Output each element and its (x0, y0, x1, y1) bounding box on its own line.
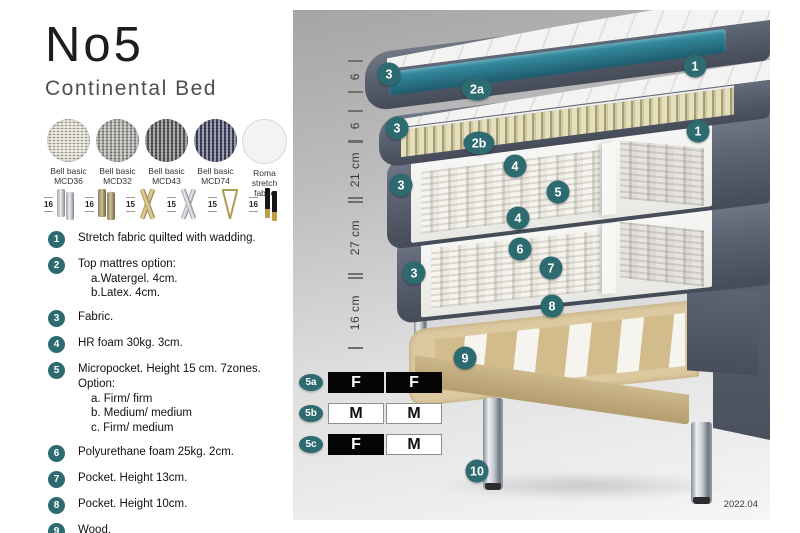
callout-1: 1 (687, 120, 710, 143)
dimension-16cm: 16 cm (342, 277, 368, 349)
callout-1: 1 (684, 55, 707, 78)
firmness-cell: F (386, 372, 442, 393)
row-label-badge: 5b (299, 405, 323, 422)
firmness-row-5a: 5a F F (299, 372, 442, 393)
product-sheet: No5 Continental Bed Bell basicMCD36 Bell… (0, 0, 800, 533)
callout-7: 7 (540, 257, 563, 280)
firmness-cell: M (386, 434, 442, 455)
fabric-swatch-icon (47, 119, 90, 162)
hairpin-leg-icon (219, 186, 241, 222)
version-stamp: 2022.04 (724, 499, 758, 510)
black-gold-leg-icon (260, 186, 282, 222)
leg-options: 16 16 15 15 15 16 (44, 186, 287, 222)
callout-6: 6 (509, 238, 532, 261)
legend-item-5: 5 Micropocket. Height 15 cm. 7zones. Opt… (48, 362, 300, 436)
pocket-springs-wall (620, 222, 704, 287)
firmness-cell: F (328, 434, 384, 455)
legend-item-7: 7 Pocket. Height 13cm. (48, 471, 300, 488)
legend-item-2: 2 Top mattres option:a.Watergel. 4cm.b.L… (48, 257, 300, 301)
legend-number-badge: 5 (48, 362, 65, 379)
legend-number-badge: 7 (48, 471, 65, 488)
callout-2b: 2b (464, 132, 495, 155)
leg-option-cross-silver: 15 (167, 186, 205, 222)
callout-3: 3 (378, 63, 401, 86)
dimension-6-second: 6 (342, 110, 368, 142)
legend-item-4: 4 HR foam 30kg. 3cm. (48, 336, 300, 353)
callout-8: 8 (541, 295, 564, 318)
fabric-swatch-icon (96, 119, 139, 162)
swatch-label: Bell basicMCD74 (197, 166, 233, 186)
fabric-swatch-icon (194, 119, 237, 162)
firmness-cell: M (328, 403, 384, 424)
cylinder-bronze-leg-icon (96, 186, 118, 222)
firmness-cell: M (386, 403, 442, 424)
firmness-table: 5a F F 5b M M 5c F M (299, 372, 442, 455)
callout-5: 5 (547, 181, 570, 204)
leg-option-cylinder-bronze: 16 (85, 186, 123, 222)
legend-item-3: 3 Fabric. (48, 310, 300, 327)
swatch-label: Bell basicMCD43 (148, 166, 184, 186)
cross-silver-leg-icon (178, 186, 200, 222)
micropocket-springs-wall (620, 140, 704, 206)
fabric-swatch-icon (145, 119, 188, 162)
legend-list: 1 Stretch fabric quilted with wadding. 2… (48, 231, 300, 533)
legend-number-badge: 2 (48, 257, 65, 274)
legend-item-8: 8 Pocket. Height 10cm. (48, 497, 300, 514)
metal-leg-right (691, 422, 712, 504)
row-label-badge: 5a (299, 374, 323, 391)
leg-option-cross-gold: 15 (126, 186, 164, 222)
legend-number-badge: 4 (48, 336, 65, 353)
legend-item-9: 9 Wood. (48, 523, 300, 533)
callout-10: 10 (466, 460, 489, 483)
title-block: No5 Continental Bed (45, 20, 217, 101)
cutaway-diagram-panel: 6 6 21 cm 27 cm 16 cm (293, 10, 770, 520)
legend-number-badge: 1 (48, 231, 65, 248)
page-subtitle: Continental Bed (45, 77, 217, 101)
legend-number-badge: 8 (48, 497, 65, 514)
legend-number-badge: 6 (48, 445, 65, 462)
callout-3: 3 (403, 262, 426, 285)
legend-number-badge: 9 (48, 523, 65, 533)
fabric-swatch-icon (242, 119, 287, 164)
callout-4: 4 (507, 207, 530, 230)
firmness-row-5c: 5c F M (299, 434, 442, 455)
dimension-27cm: 27 cm (342, 201, 368, 275)
firmness-row-5b: 5b M M (299, 403, 442, 424)
swatch-label: Bell basicMCD32 (99, 166, 135, 186)
page-title: No5 (45, 20, 217, 71)
callout-2a: 2a (462, 78, 493, 101)
callout-4: 4 (504, 155, 527, 178)
swatch-label: Bell basicMCD36 (50, 166, 86, 186)
leg-option-hairpin: 15 (208, 186, 246, 222)
callout-3: 3 (386, 117, 409, 140)
legend-item-6: 6 Polyurethane foam 25kg. 2cm. (48, 445, 300, 462)
callout-9: 9 (454, 347, 477, 370)
cross-gold-leg-icon (137, 186, 159, 222)
firmness-cell: F (328, 372, 384, 393)
callout-3: 3 (390, 174, 413, 197)
leg-option-cylinder-silver: 16 (44, 186, 82, 222)
legend-number-badge: 3 (48, 310, 65, 327)
base-side-fabric (687, 286, 759, 375)
row-label-badge: 5c (299, 436, 323, 453)
leg-option-black-gold: 16 (249, 186, 287, 222)
dimension-21cm: 21 cm (342, 141, 368, 199)
cylinder-silver-leg-icon (55, 186, 77, 222)
legend-item-1: 1 Stretch fabric quilted with wadding. (48, 231, 300, 248)
